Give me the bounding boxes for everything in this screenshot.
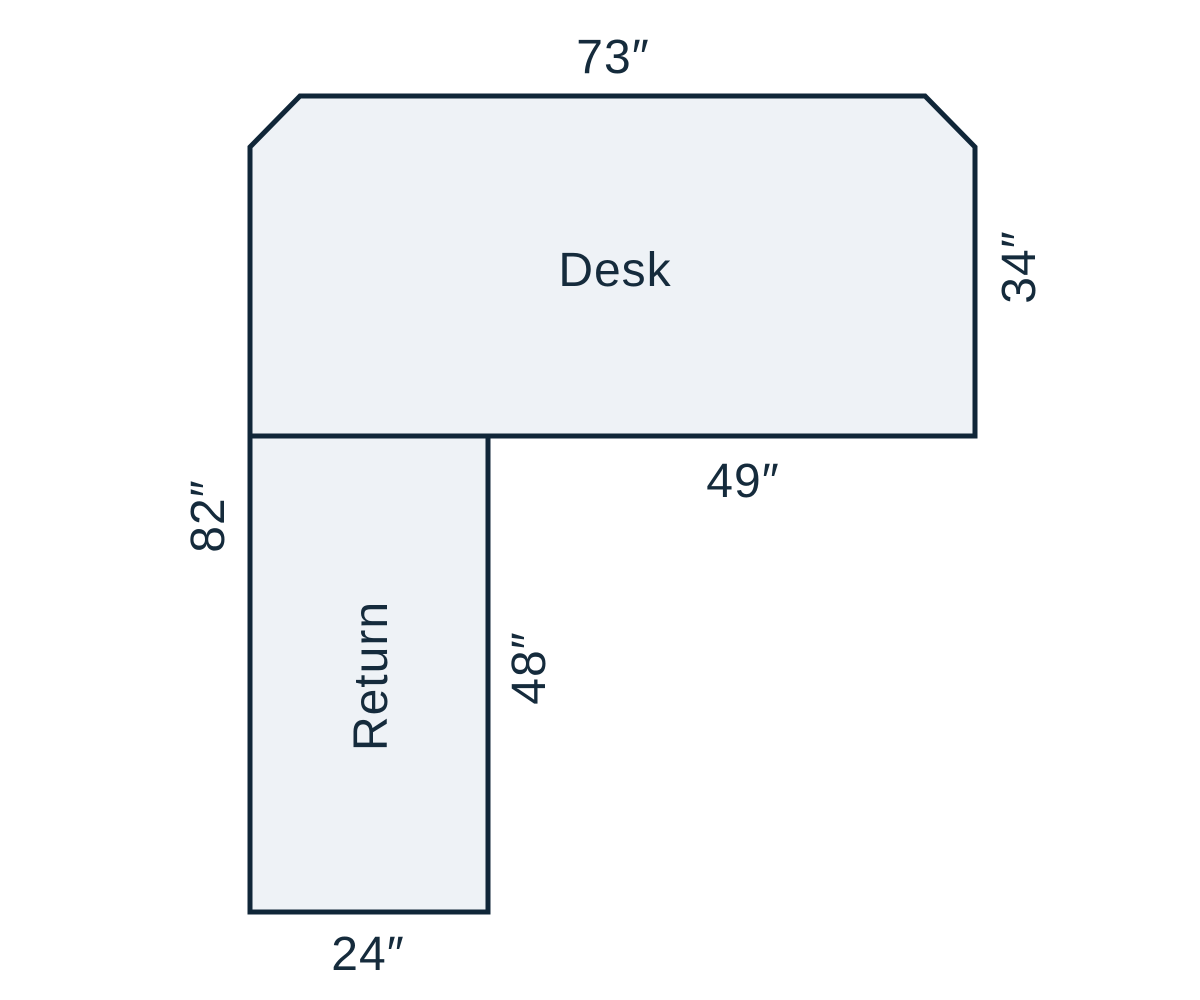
return-label: Return xyxy=(345,601,398,751)
desk-label: Desk xyxy=(558,244,671,297)
return-right-length-dimension: 48″ xyxy=(503,631,556,704)
desk-right-depth-dimension: 34″ xyxy=(993,230,1046,303)
desk-top-width-dimension: 73″ xyxy=(576,31,649,84)
return-bottom-width-dimension: 24″ xyxy=(331,928,404,981)
desk-layout-diagram: 73″ Desk 34″ 49″ 82″ Return 48″ 24″ xyxy=(0,0,1200,1000)
left-total-height-dimension: 82″ xyxy=(182,479,235,552)
desk-bottom-right-span-dimension: 49″ xyxy=(706,455,779,508)
desk-diagram-svg: 73″ Desk 34″ 49″ 82″ Return 48″ 24″ xyxy=(0,0,1200,1000)
